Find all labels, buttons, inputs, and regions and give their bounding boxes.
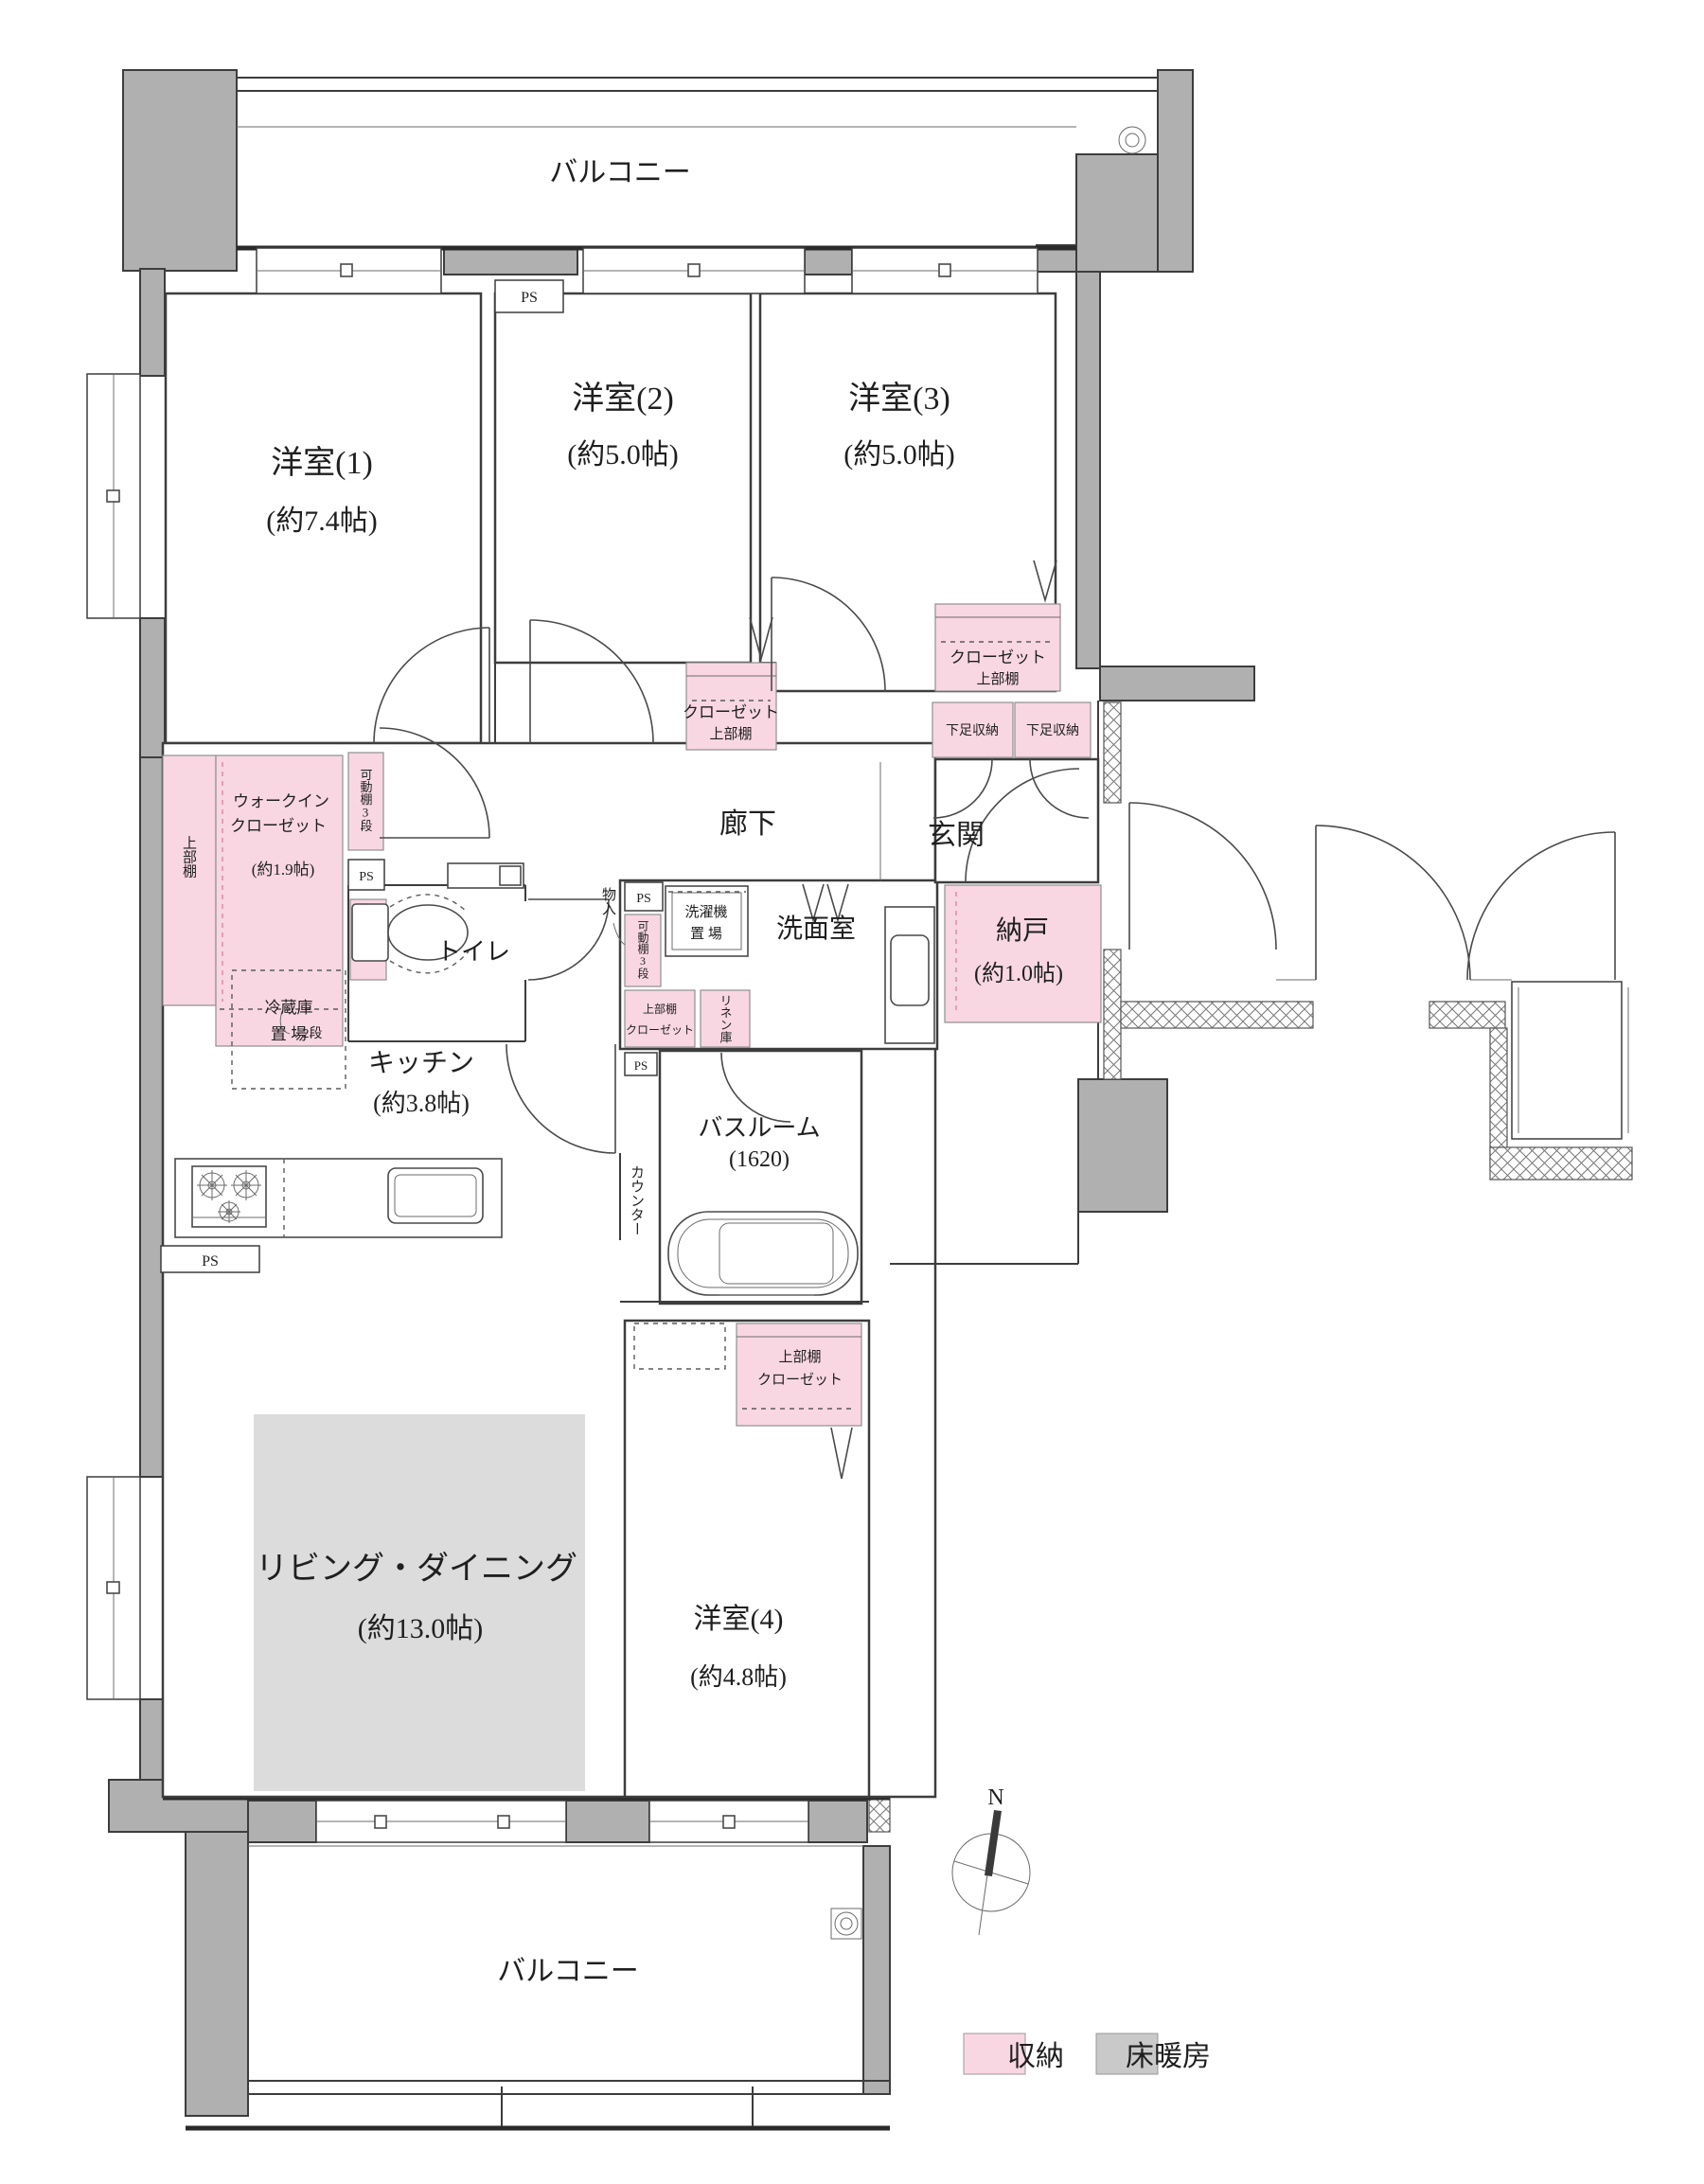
shoe-left-label: 下足収納	[946, 723, 999, 738]
bath-size: (1620)	[729, 1147, 790, 1172]
disaster-box	[1512, 982, 1622, 1139]
wall-bottom-left-column	[186, 1832, 248, 2116]
wall-entrance-south-block	[1078, 1079, 1167, 1212]
ld-name: リビング・ダイニング	[256, 1551, 577, 1587]
legend-heating-label: 床暖房	[1126, 2041, 1211, 2072]
wall-left-mid1	[140, 618, 165, 757]
linen-label: リネン庫	[719, 994, 733, 1043]
top-balcony: バルコニー	[237, 78, 1158, 248]
wall-bottom-pier-2	[248, 1801, 316, 1842]
hatch-entry-upper	[1104, 702, 1121, 803]
floorplan-svg: バルコニー バルコニー	[0, 0, 1704, 2184]
wall-left-mid2	[140, 757, 163, 1477]
stove-fixture	[192, 1166, 266, 1227]
kitchen-size: (約3.8帖)	[373, 1090, 470, 1117]
room-w2-outline	[495, 293, 751, 663]
movable-shelf2-label: 可動棚3段	[636, 920, 649, 980]
w2-size: (約5.0帖)	[567, 439, 678, 471]
window-w1-left	[87, 374, 140, 618]
hatch-corridor-1	[1121, 1002, 1313, 1028]
nando-size: (約1.0帖)	[974, 961, 1063, 986]
washer-line2: 置 場	[690, 926, 722, 942]
bottom-drain-outer	[835, 1912, 858, 1935]
movable-shelf1-label: 可動棚3段	[359, 769, 373, 832]
wall-bottom-balcony-right	[863, 1846, 890, 2094]
legend: 収納 床暖房	[964, 2033, 1211, 2074]
balcony-drain-outer	[1119, 127, 1145, 153]
toilet-label: トイレ	[436, 938, 510, 966]
bottom-balcony: バルコニー	[163, 1798, 890, 2128]
w3-name: 洋室(3)	[848, 381, 950, 417]
mid-closet-line2: クローゼット	[626, 1023, 694, 1037]
bathtub-fixture	[668, 1212, 858, 1295]
wall-entrance-north	[1100, 666, 1254, 701]
hatch-corridor-2	[1429, 1002, 1505, 1028]
mid-upper-closet-area	[625, 990, 695, 1047]
ld-size: (約13.0帖)	[358, 1613, 483, 1644]
compass-needle	[985, 1810, 1002, 1876]
window-w2-top	[583, 248, 805, 293]
ps-monoire-label: PS	[636, 892, 651, 906]
compass-north-label: N	[987, 1785, 1003, 1810]
window-w1-top	[257, 248, 441, 293]
w3-closet-shelf-label: 上部棚	[976, 671, 1019, 687]
ps-top-label: PS	[521, 290, 538, 306]
vanity-fixture	[885, 907, 934, 1043]
hatch-corridor-3	[1490, 1028, 1507, 1166]
wall-left-upper	[140, 269, 165, 376]
wic-shelf-label: 上部棚	[181, 836, 197, 879]
nando-name: 納戸	[996, 915, 1049, 946]
wall-balcony-left-block	[123, 70, 237, 271]
ps-wic-label: PS	[359, 870, 374, 884]
w4-size: (約4.8帖)	[690, 1663, 787, 1691]
w4-closet-line1: 上部棚	[778, 1349, 821, 1365]
floorplan-page: バルコニー バルコニー	[0, 0, 1704, 2184]
entrance-label: 玄関	[928, 820, 985, 851]
hatch-corridor-4	[1490, 1147, 1632, 1180]
legend-storage-label: 収納	[1007, 2041, 1064, 2072]
w2-closet-label: クローゼット	[683, 703, 779, 721]
ps-kitchen-label: PS	[202, 1253, 219, 1270]
w4-name: 洋室(4)	[694, 1604, 784, 1635]
wall-window-pier-1	[444, 248, 577, 275]
bottom-drain-inner	[841, 1918, 852, 1929]
w1-size: (約7.4帖)	[266, 506, 377, 537]
w3-closet-label: クローゼット	[950, 648, 1046, 666]
bath-name: バスルーム	[698, 1114, 820, 1142]
top-balcony-label: バルコニー	[549, 157, 690, 188]
wall-balcony-right-column	[1158, 70, 1193, 272]
window-ld-left	[87, 1477, 140, 1699]
bottom-drain-box	[831, 1909, 861, 1939]
wic-size: (約1.9帖)	[252, 861, 315, 879]
kitchen-counter	[175, 1159, 502, 1237]
shoe-right-label: 下足収納	[1026, 723, 1079, 738]
window-w3-top	[852, 248, 1038, 293]
compass: N	[952, 1785, 1030, 1935]
window-ld-bottom	[316, 1801, 566, 1842]
kitchen-name: キッチン	[368, 1049, 474, 1078]
wall-bottom-pier-3	[808, 1801, 867, 1842]
door-front-arc	[1129, 803, 1276, 950]
w2-closet-shelf-label: 上部棚	[709, 726, 752, 742]
wall-east-strip	[1076, 272, 1100, 668]
door-corridor-arc	[1316, 826, 1470, 980]
floor-heating-area	[254, 1414, 585, 1791]
w4-closet-line2: クローゼット	[757, 1372, 843, 1388]
window-w4-bottom	[649, 1801, 808, 1842]
wic-line2: クローゼット	[230, 817, 327, 835]
w2-name: 洋室(2)	[572, 381, 674, 417]
mid-closet-line1: 上部棚	[643, 1002, 677, 1016]
door-disaster-arc	[1467, 832, 1615, 980]
counter-label: カウンター	[629, 1165, 644, 1236]
balcony-drain-inner	[1126, 133, 1139, 147]
w3-size: (約5.0帖)	[843, 439, 954, 471]
washer-fixture	[666, 886, 748, 956]
hall-label: 廊下	[719, 808, 776, 840]
wall-bottom-pier-1	[566, 1801, 649, 1842]
compass-tail	[979, 1874, 987, 1935]
washroom-label: 洗面室	[776, 914, 856, 944]
w1-name: 洋室(1)	[271, 445, 373, 481]
washer-line1: 洗濯機	[684, 904, 727, 920]
fridge-line2: 置 場	[271, 1025, 307, 1043]
fridge-line1: 冷蔵庫	[265, 999, 313, 1017]
ps-bath-label: PS	[634, 1058, 648, 1073]
disaster-storage	[1512, 982, 1628, 1139]
nando-area	[945, 885, 1101, 1022]
toilet-cabinet	[448, 863, 524, 888]
monoire-label: 物入	[600, 887, 616, 915]
wall-balcony-right-block	[1076, 154, 1158, 272]
wic-upper-shelf-area	[163, 755, 216, 1005]
sink-fixture	[388, 1168, 483, 1223]
wic-line1: ウォークイン	[233, 792, 329, 810]
wall-window-pier-2	[805, 248, 852, 275]
hatch-entry-lower	[1104, 950, 1121, 1079]
bottom-balcony-label: バルコニー	[497, 1956, 638, 1987]
